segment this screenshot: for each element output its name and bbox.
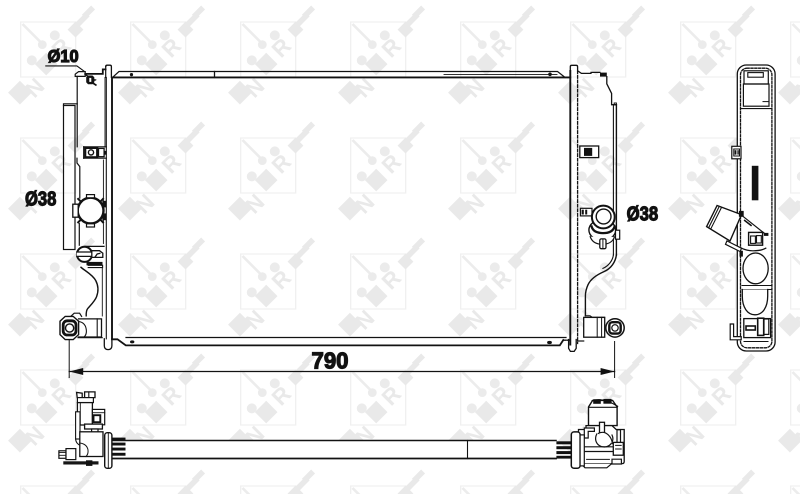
- svg-text:Ø38: Ø38: [627, 202, 659, 225]
- svg-text:Ø38: Ø38: [25, 189, 56, 211]
- svg-text:790: 790: [312, 347, 349, 373]
- svg-text:Ø10: Ø10: [48, 46, 79, 66]
